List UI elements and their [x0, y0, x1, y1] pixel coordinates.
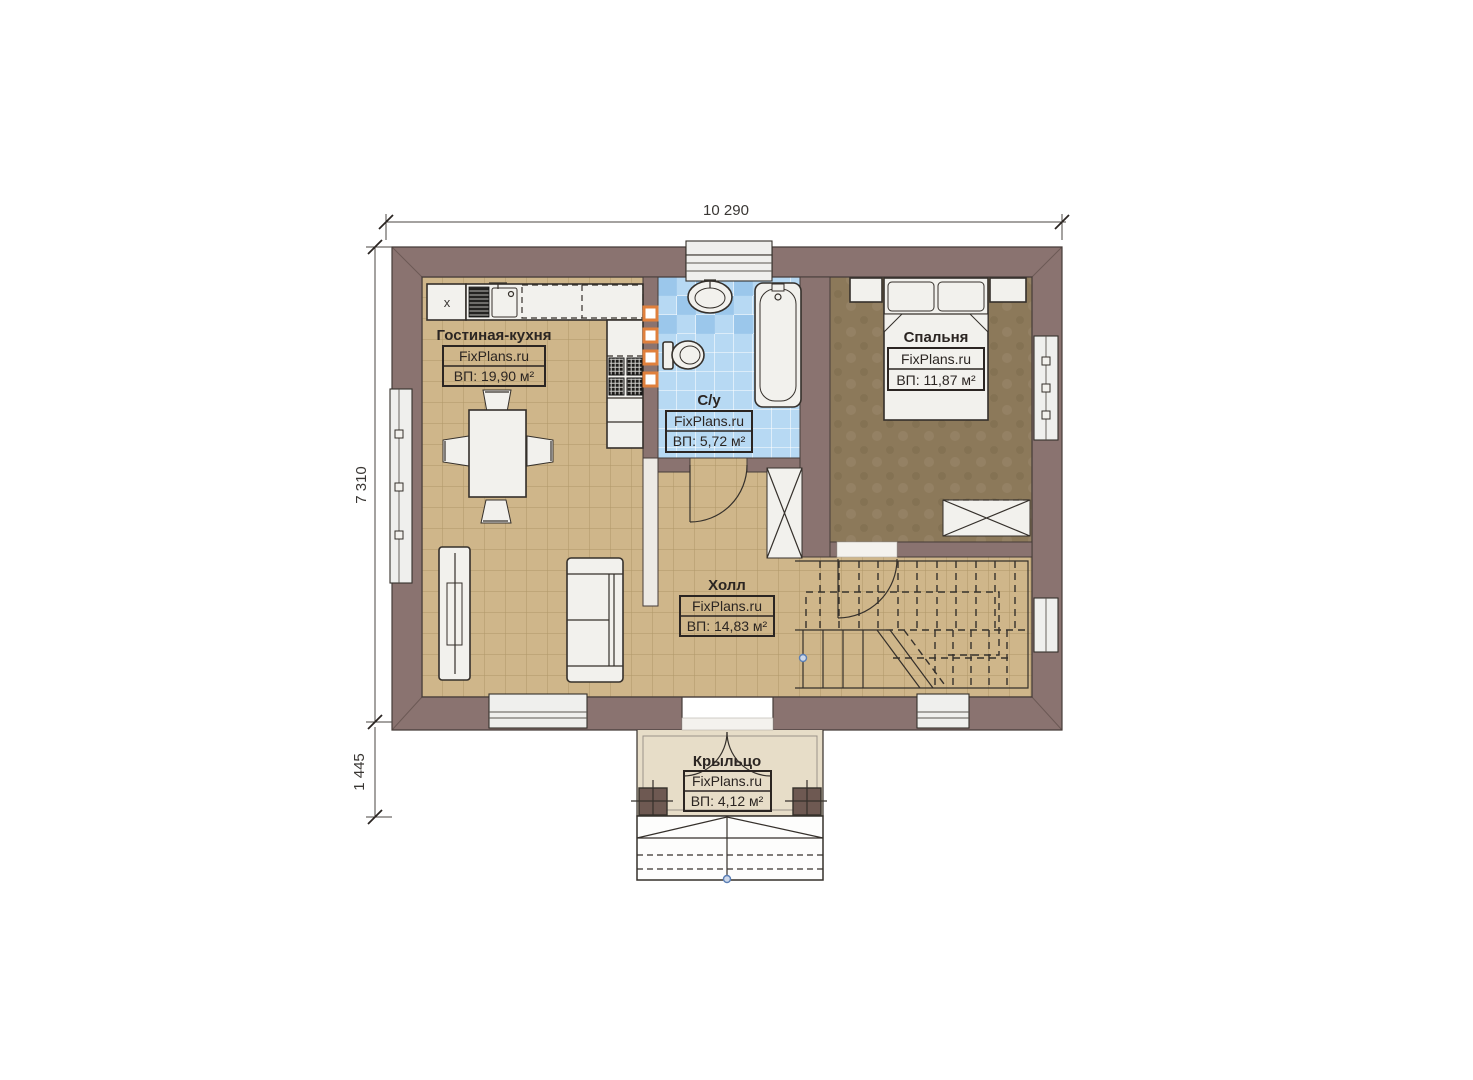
bedroom-wall-left-of-door	[830, 542, 837, 557]
bathtub	[755, 283, 801, 407]
bedroom-title: Спальня	[904, 329, 969, 346]
toilet	[663, 341, 704, 369]
dishwasher	[469, 287, 489, 317]
floor-plan-svg: x	[0, 0, 1473, 1080]
living-area: ВП: 19,90 м²	[454, 368, 535, 384]
porch-title: Крыльцо	[693, 753, 761, 770]
hall-partition	[643, 458, 658, 606]
dining-table	[469, 410, 526, 497]
sofa	[567, 558, 623, 682]
window-bottom-hall	[917, 694, 969, 728]
dimension-left: 7 310	[353, 240, 392, 729]
dimension-top: 10 290	[379, 202, 1069, 240]
steps-marker	[724, 876, 731, 883]
hall-closet	[767, 468, 802, 558]
entrance-threshold	[682, 718, 773, 730]
chair-bottom	[481, 500, 511, 523]
hall-area: ВП: 14,83 м²	[687, 618, 768, 634]
chair-left	[443, 436, 469, 466]
room-label-porch: Крыльцо FixPlans.ru ВП: 4,12 м²	[684, 753, 771, 811]
tv-unit	[439, 547, 470, 680]
porch-brand: FixPlans.ru	[692, 773, 762, 789]
bathroom-title: С/у	[697, 392, 721, 409]
living-brand: FixPlans.ru	[459, 348, 529, 364]
nightstand-left	[850, 278, 882, 302]
window-top-bath	[686, 241, 772, 281]
pillow-left	[888, 282, 934, 311]
bathroom-brand: FixPlans.ru	[674, 413, 744, 429]
bedroom-area: ВП: 11,87 м²	[896, 372, 976, 388]
bedroom-door-threshold	[837, 542, 897, 557]
porch-area: ВП: 4,12 м²	[691, 793, 764, 809]
dim-height-label: 7 310	[353, 466, 370, 504]
chair-right	[527, 436, 553, 466]
pillow-right	[938, 282, 984, 311]
appliance-x-label: x	[444, 295, 451, 310]
living-title: Гостиная-кухня	[437, 327, 552, 344]
bedroom-wardrobe	[943, 500, 1030, 536]
stair-marker	[800, 655, 807, 662]
kitchen-bath-wall	[643, 277, 658, 458]
window-left-living	[390, 389, 412, 583]
hall-brand: FixPlans.ru	[692, 598, 762, 614]
porch-steps	[637, 816, 823, 883]
bedroom-wall-right-of-door	[897, 542, 1032, 557]
nightstand-right	[990, 278, 1026, 302]
dimension-porch: 1 445	[351, 727, 392, 824]
window-right-bedroom	[1034, 336, 1058, 440]
chair-top	[483, 390, 511, 412]
dim-width-label: 10 290	[703, 202, 749, 219]
bedroom-brand: FixPlans.ru	[901, 351, 971, 367]
dim-porch-label: 1 445	[351, 753, 368, 791]
bath-bedroom-wall	[800, 277, 830, 557]
bath-wall-left-of-door	[658, 458, 690, 472]
hall-title: Холл	[708, 577, 746, 594]
bathroom-area: ВП: 5,72 м²	[673, 433, 746, 449]
window-right-hall	[1034, 598, 1058, 652]
floor-plan-page: x	[0, 0, 1473, 1080]
window-bottom-living	[489, 694, 587, 728]
